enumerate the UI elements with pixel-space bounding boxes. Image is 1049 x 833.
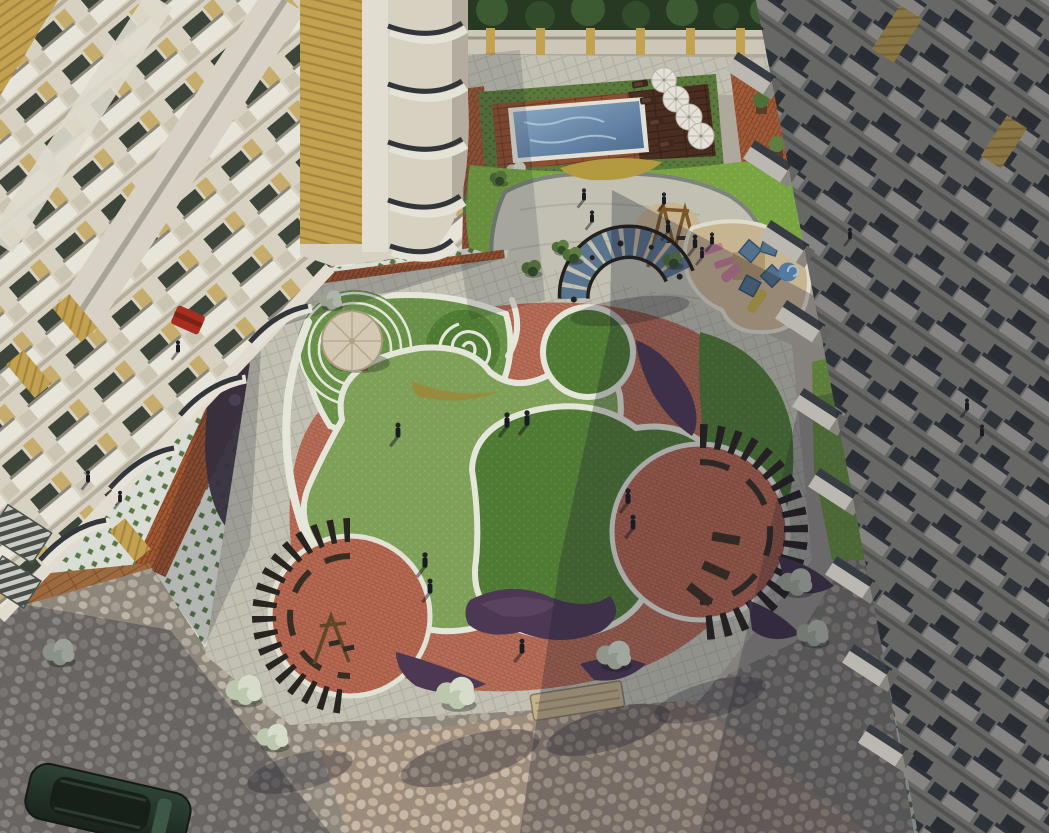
rendering-canvas <box>0 0 1049 833</box>
color-grade-overlay <box>0 0 1049 833</box>
